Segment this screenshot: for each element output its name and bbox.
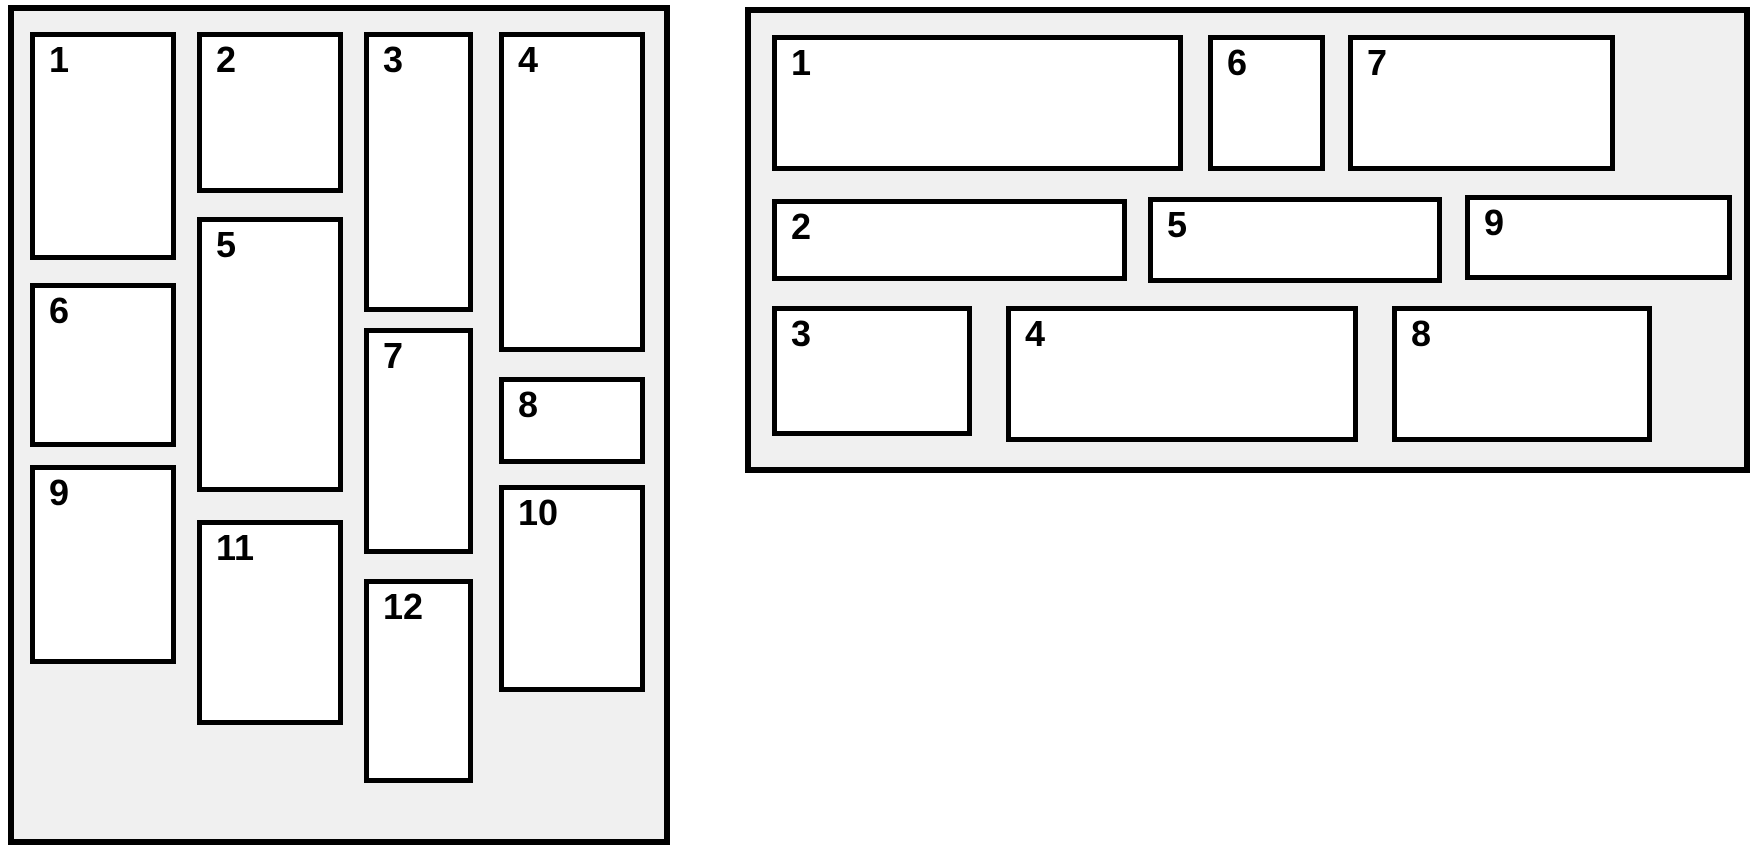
card-number-label: 2: [216, 42, 338, 78]
card-number-label: 6: [49, 293, 171, 329]
card-number-label: 4: [1025, 316, 1353, 352]
numbered-card-6: 6: [1208, 35, 1325, 171]
numbered-card-8: 8: [499, 377, 645, 464]
numbered-card-12: 12: [364, 579, 473, 783]
card-number-label: 12: [383, 589, 468, 625]
card-number-label: 11: [216, 530, 338, 566]
card-number-label: 9: [49, 475, 171, 511]
numbered-card-5: 5: [1148, 197, 1442, 283]
numbered-card-6: 6: [30, 283, 176, 447]
card-number-label: 7: [1367, 45, 1610, 81]
card-number-label: 10: [518, 495, 640, 531]
card-number-label: 7: [383, 338, 468, 374]
numbered-card-7: 7: [1348, 35, 1615, 171]
card-number-label: 6: [1227, 45, 1320, 81]
card-number-label: 8: [1411, 316, 1647, 352]
numbered-card-1: 1: [772, 35, 1183, 171]
numbered-card-2: 2: [772, 199, 1127, 281]
card-number-label: 4: [518, 42, 640, 78]
card-number-label: 5: [1167, 207, 1437, 243]
numbered-card-2: 2: [197, 32, 343, 193]
numbered-card-4: 4: [1006, 306, 1358, 442]
numbered-card-1: 1: [30, 32, 176, 260]
numbered-card-7: 7: [364, 328, 473, 554]
numbered-card-4: 4: [499, 32, 645, 352]
card-number-label: 8: [518, 387, 640, 423]
numbered-card-8: 8: [1392, 306, 1652, 442]
numbered-card-3: 3: [364, 32, 473, 312]
card-number-label: 1: [49, 42, 171, 78]
card-number-label: 2: [791, 209, 1122, 245]
card-number-label: 3: [383, 42, 468, 78]
card-number-label: 9: [1484, 205, 1727, 241]
card-number-label: 1: [791, 45, 1178, 81]
numbered-card-5: 5: [197, 217, 343, 492]
numbered-card-3: 3: [772, 306, 972, 436]
card-number-label: 5: [216, 227, 338, 263]
numbered-card-9: 9: [30, 465, 176, 664]
layout-comparison-canvas: 123456789101112 123456789: [0, 0, 1755, 852]
row-grid-panel: 123456789: [745, 7, 1750, 473]
card-number-label: 3: [791, 316, 967, 352]
numbered-card-9: 9: [1465, 195, 1732, 280]
numbered-card-11: 11: [197, 520, 343, 725]
masonry-panel: 123456789101112: [8, 5, 670, 845]
numbered-card-10: 10: [499, 485, 645, 692]
